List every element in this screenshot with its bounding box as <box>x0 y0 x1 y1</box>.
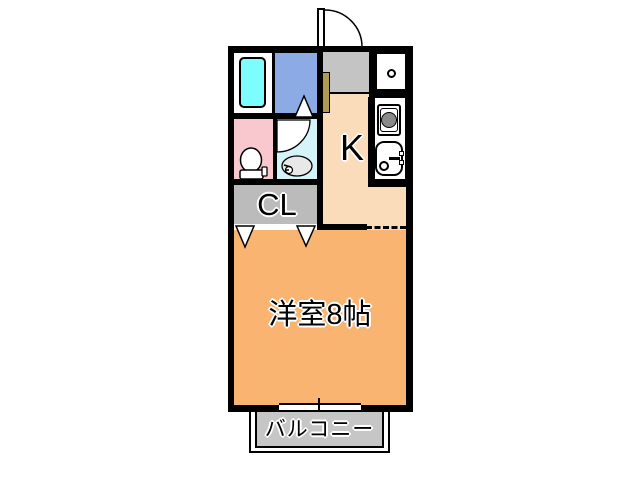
entrance-door-arc <box>325 10 362 47</box>
closet-label: CL <box>234 188 320 222</box>
utility-door-triangle <box>295 96 313 117</box>
toilet-handle <box>262 167 267 176</box>
window <box>279 403 361 412</box>
main-room-label: 洋室8帖 <box>234 299 406 331</box>
washroom-door-arc <box>277 120 310 152</box>
closet-door-triangle-left <box>236 226 254 247</box>
closet-door-triangle-right <box>297 226 315 246</box>
toilet-tank <box>240 170 263 179</box>
toilet-bowl <box>241 148 262 172</box>
floor-plan: バルコニー <box>0 0 640 480</box>
window-center-tick <box>318 398 320 412</box>
kitchen-label: K <box>332 128 372 168</box>
